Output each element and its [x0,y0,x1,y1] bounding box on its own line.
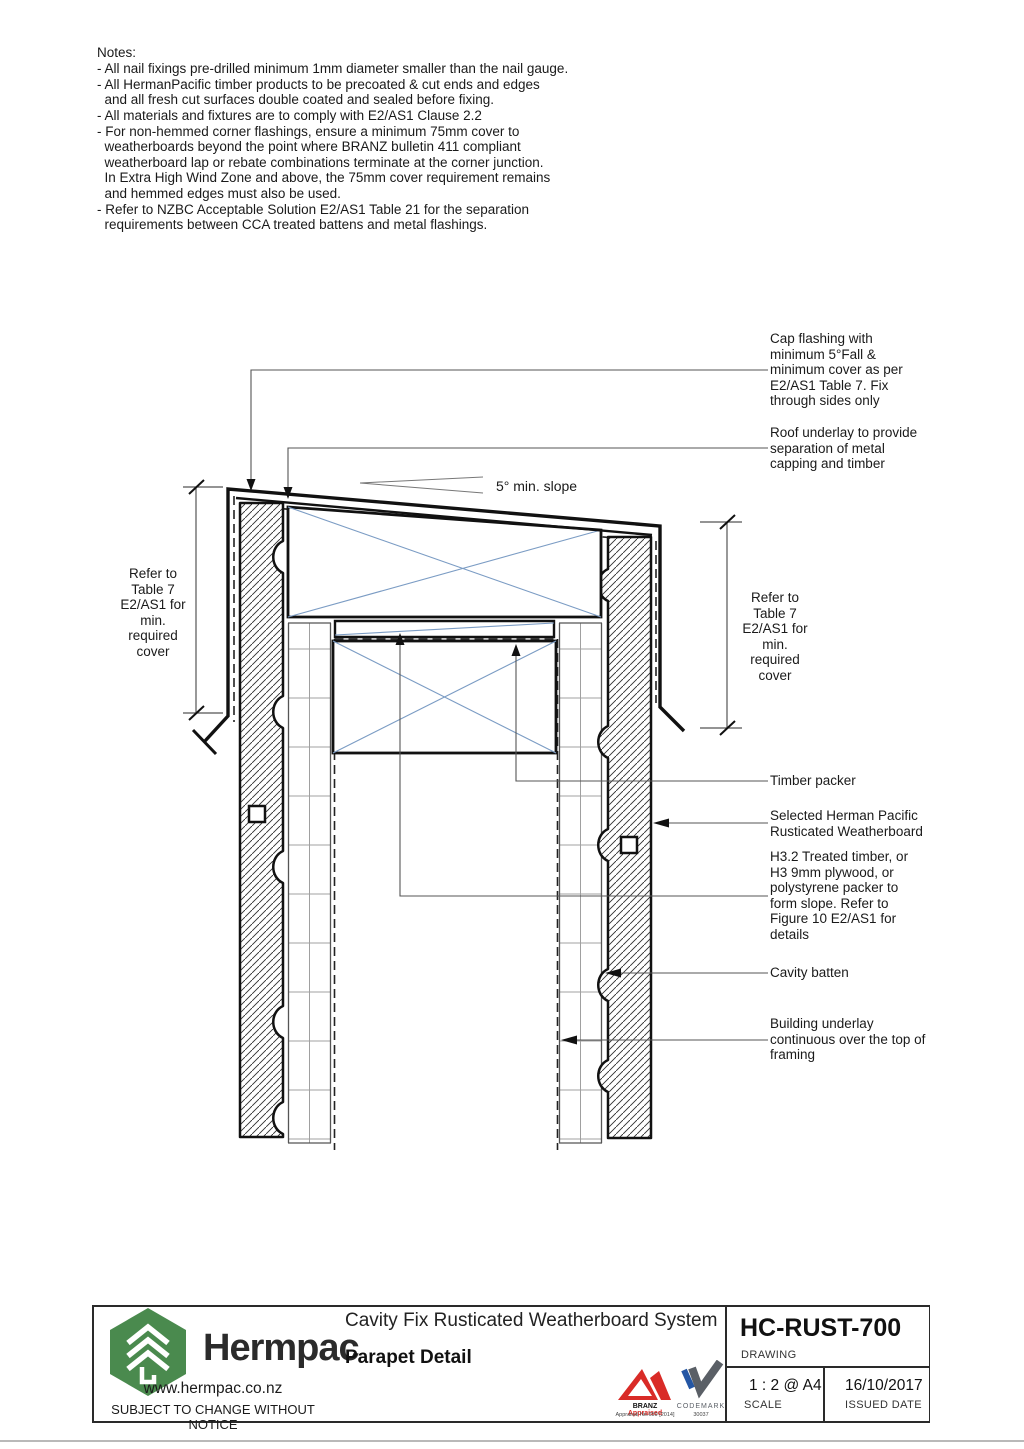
slope-packer [335,621,554,637]
cavity-batten-left [288,623,331,1143]
scale-value: 1 : 2 @ A4 [749,1377,822,1395]
batten-fixing-left [249,806,265,822]
page-bottom-edge [0,1440,1024,1442]
cavity-batten-right [559,623,602,1143]
branz-appraised-icon [615,1366,673,1406]
drawing-sheet: Notes: - All nail fixings pre-drilled mi… [0,0,1024,1449]
drawing-number: HC-RUST-700 [740,1314,901,1343]
note-line: - For non-hemmed corner flashings, ensur… [97,124,519,139]
title-block-border-right [929,1305,931,1423]
issued-date-label: ISSUED DATE [845,1399,922,1411]
title-block-divider-row [725,1366,930,1368]
scale-label: SCALE [744,1399,782,1411]
issued-date-value: 16/10/2017 [845,1377,923,1395]
note-line: requirements between CCA treated battens… [97,217,487,232]
branz-word: BRANZ [633,1403,658,1410]
drawing-title: Parapet Detail [345,1347,472,1369]
label-cavity-batten: Cavity batten [770,965,940,981]
label-dim-right: Refer to Table 7 E2/AS1 for min. require… [733,590,817,683]
note-line: weatherboard lap or rebate combinations … [97,155,544,170]
title-block-divider-scale-date [823,1366,825,1423]
label-slope: 5° min. slope [496,479,577,495]
branz-appraisal-number: Appraisal No.659 [2014] [612,1412,678,1418]
codemark-number: 30037 [670,1412,732,1418]
label-roof-underlay: Roof underlay to provide separation of m… [770,425,950,472]
label-dim-left: Refer to Table 7 E2/AS1 for min. require… [111,566,195,659]
brand-name: Hermpac [203,1327,359,1370]
note-line: and all fresh cut surfaces double coated… [97,92,494,107]
label-packer-slope: H3.2 Treated timber, or H3 9mm plywood, … [770,849,940,942]
label-weatherboard: Selected Herman Pacific Rusticated Weath… [770,808,950,839]
weatherboard-left [240,503,283,1137]
top-blocking [288,507,601,617]
slope-indicator [360,477,483,493]
weatherboard-right [598,537,651,1138]
note-line: - All HermanPacific timber products to b… [97,77,540,92]
label-cap-flashing: Cap flashing with minimum 5°Fall & minim… [770,331,940,409]
note-line: - Refer to NZBC Acceptable Solution E2/A… [97,202,529,217]
codemark-label: CODEMARK [670,1403,732,1410]
note-line: - All nail fixings pre-drilled minimum 1… [97,61,568,76]
drawing-number-label: DRAWING [741,1349,797,1361]
disclaimer-text: SUBJECT TO CHANGE WITHOUT NOTICE [88,1402,338,1432]
timber-packer-block [333,641,556,753]
note-line: In Extra High Wind Zone and above, the 7… [97,170,550,185]
note-line: weatherboards beyond the point where BRA… [97,139,521,154]
website-link[interactable]: www.hermpac.co.nz [88,1380,338,1398]
batten-fixing-right [621,837,637,853]
label-timber-packer: Timber packer [770,773,940,789]
system-title: Cavity Fix Rusticated Weatherboard Syste… [345,1310,717,1332]
notes-title: Notes: [97,45,136,60]
codemark-icon [678,1360,724,1402]
title-block-border-top [92,1305,930,1307]
note-line: and hemmed edges must also be used. [97,186,341,201]
note-line: - All materials and fixtures are to comp… [97,108,482,123]
label-building-underlay: Building underlay continuous over the to… [770,1016,950,1063]
